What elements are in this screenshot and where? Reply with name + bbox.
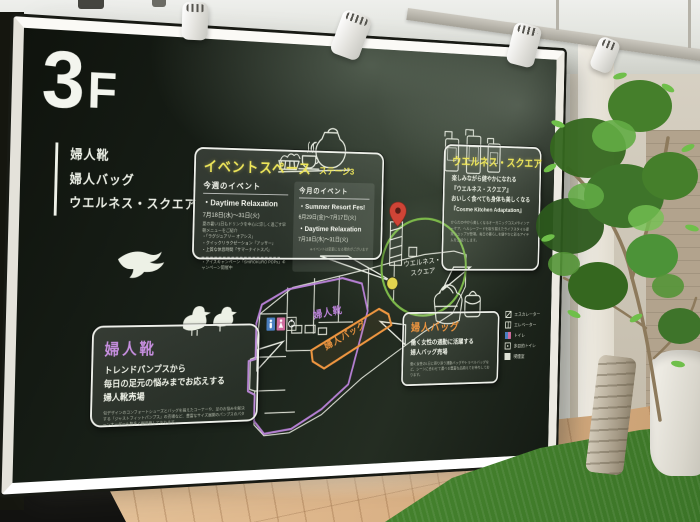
rail-stem [688, 0, 691, 48]
chalkboard: 婦人靴 婦人バッグ ウエルネス・ スクエア [12, 28, 556, 483]
svg-text:スクエア: スクエア [410, 266, 436, 277]
restroom-icon [505, 332, 511, 339]
map-label-wellness: ウエルネス・ スクエア [403, 256, 442, 278]
ceiling-vent [78, 0, 104, 9]
event-stage-label: ステージ3 [319, 164, 355, 178]
wellness-panel-title: ウエルネス・スクエア [452, 153, 533, 170]
floor-guide-board: 婦人靴 婦人バッグ ウエルネス・ スクエア [1, 16, 564, 494]
monthly-note: ※イベントは変更になる場合がございます [298, 247, 369, 253]
current-location-dot [387, 277, 398, 290]
bags-panel-title: 婦人バッグ [411, 319, 491, 335]
floor-letter: F [87, 65, 118, 117]
event-space-panel: イベントスペース ステージ3 今週のイベント ・Daytime Relaxati… [192, 147, 384, 260]
dove-icon [118, 251, 165, 278]
womens-bags-panel: 婦人バッグ 働く女性の通勤に活躍する 婦人バッグ売場 働く女性の1日に寄り添う通… [401, 311, 499, 386]
monthly-events-heading: 今月のイベント [299, 185, 370, 199]
floor-directory-list: 婦人靴 婦人バッグ ウエルネス・スクエア [54, 142, 198, 217]
divider [202, 257, 280, 258]
floor-digit: 3 [41, 41, 86, 120]
bags-desc: 働く女性の1日に寄り添う通勤バッグやトラベルバッグなど、シーンに合わせて選べる豊… [410, 360, 490, 378]
ceiling-vent [152, 0, 166, 7]
monthly-events-box: 今月のイベント ・Summer Resort Fes! 6月29日(金)〜7月1… [292, 182, 374, 272]
weekly-event-name: ・Daytime Relaxation [203, 197, 288, 210]
elevator-icon [505, 321, 511, 328]
wellness-desc: からだの中から美しくなるオーガニックコスメやインナーケア、ヘルシーフードを取り揃… [450, 220, 532, 244]
facilities-legend: エスカレーター エレベーター トイレ 多目的トイレ 喫煙室 [504, 311, 540, 361]
restroom-icon [266, 317, 285, 330]
wheelchair-icon [287, 317, 297, 330]
directory-item: 婦人バッグ [69, 167, 197, 194]
store-floor-guide-photo: 婦人靴 婦人バッグ ウエルネス・ スクエア [0, 0, 700, 522]
weekly-event-dates: 7月18日(水)〜31日(火) [203, 209, 288, 220]
rail-stem [556, 0, 559, 30]
womens-shoes-panel: 婦人靴 トレンドパンプスから 毎日の足元の悩みまでお応えする 婦人靴売場 旬デザ… [90, 323, 260, 427]
accessible-restroom-icon [505, 342, 511, 349]
smoking-room-icon [504, 353, 510, 360]
directory-item: ウエルネス・スクエア [69, 192, 197, 218]
wellness-square-panel: ウエルネス・スクエア 楽しみながら健やかになれる 『ウエルネス・スクエア』 おい… [441, 144, 541, 271]
white-planter [650, 350, 700, 476]
weekly-events-heading: 今週のイベント [203, 179, 288, 195]
spotlight [181, 2, 208, 41]
floor-number: 3 F [41, 41, 118, 121]
weekly-event-bullets: ・「ラグジュアリー オアシス」 ・クイックリラクゼーション「アッサー」 ・上質な… [202, 234, 288, 254]
weekly-campaign: ・アイスキャンペーン「SHiROKURO POPs」キャンペーン開催中 [201, 259, 286, 271]
shoes-panel-title: 婦人靴 [104, 334, 247, 360]
event-panel-title: イベントスペース [204, 156, 312, 179]
directory-item: 婦人靴 [70, 143, 198, 171]
escalator-icon [505, 311, 511, 318]
weekly-event-desc: 夏の暑い1日もドリンクを中心に涼しく過ごす早朝メニューをご紹介 [202, 221, 287, 234]
